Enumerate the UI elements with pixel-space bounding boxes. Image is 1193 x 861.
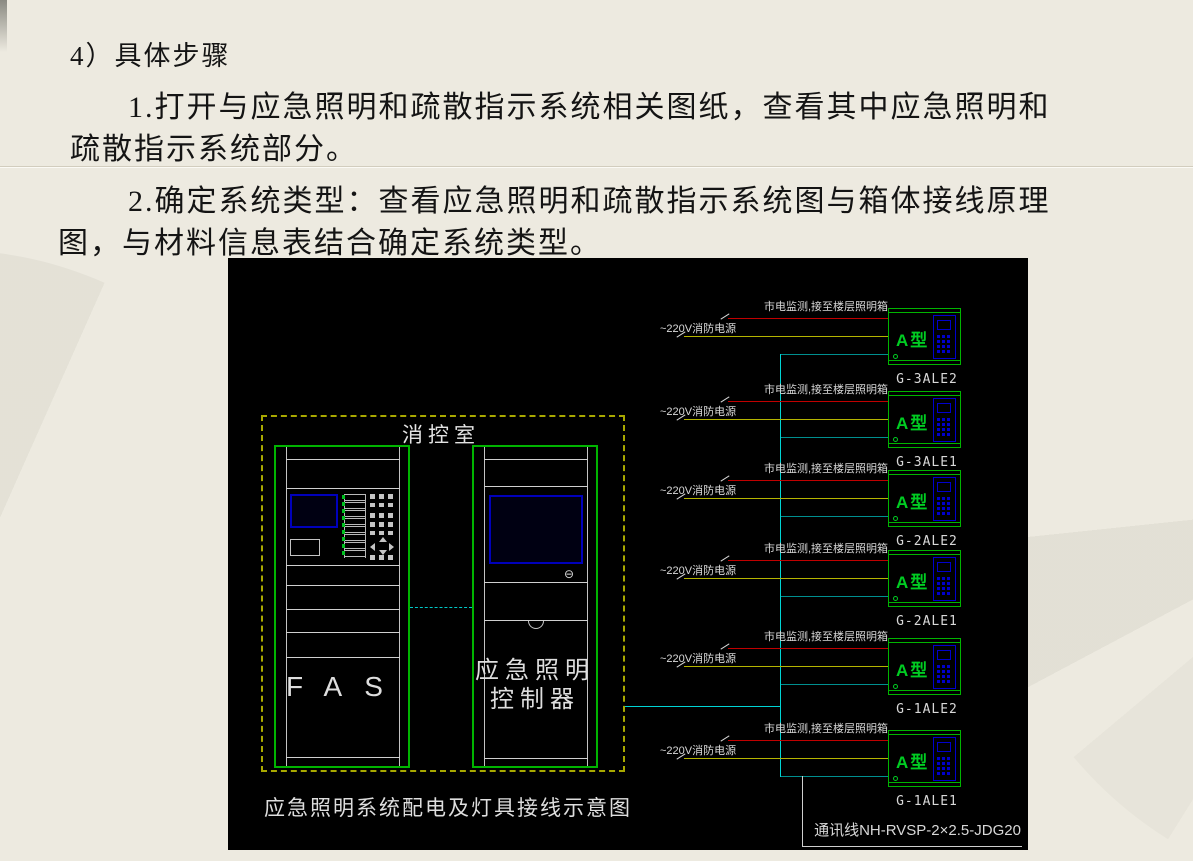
box-inner-border-top [889, 312, 960, 313]
fas-top-divider [286, 459, 400, 460]
controller-display-screen [489, 495, 583, 564]
box-inner-border-bottom [889, 690, 960, 691]
distribution-box: A型 [888, 308, 961, 365]
fire-power-label: ~220V消防电源 [660, 320, 750, 336]
box-inner-border-bottom [889, 522, 960, 523]
unit-id-label: G-1ALE1 [888, 794, 966, 809]
mains-monitoring-wire [728, 648, 888, 649]
lighting-unit: 市电监测,接至楼层照明箱 ~220V消防电源 A型 G-1ALE2 [658, 622, 970, 718]
panel-keypad-icon [937, 497, 952, 516]
fas-cabinet-label: FAS [286, 671, 400, 703]
type-a-label: A型 [896, 409, 929, 434]
terminal-dot-icon [893, 516, 898, 521]
distribution-box: A型 [888, 470, 961, 527]
distribution-box: A型 [888, 638, 961, 695]
bus-stub-wire [781, 776, 888, 777]
paragraph1-line2: 疏散指示系统部分。 [70, 124, 358, 168]
fas-indicator-leds [342, 494, 345, 558]
fas-left-rail [286, 447, 287, 766]
panel-keypad-icon [937, 418, 952, 437]
mains-monitoring-wire [728, 480, 888, 481]
comm-callout-underline [802, 846, 1022, 847]
arrow-left-icon [370, 543, 375, 551]
presentation-slide: 4）具体步骤 1.打开与应急照明和疏散指示系统相关图纸，查看其中应急照明和 疏散… [0, 0, 1193, 861]
horizontal-divider [0, 166, 1193, 168]
panel-screen-icon [937, 562, 951, 572]
slide-heading: 4）具体步骤 [70, 34, 231, 73]
fire-power-wire [684, 419, 888, 420]
terminal-dot-icon [893, 776, 898, 781]
fire-power-label: ~220V消防电源 [660, 562, 750, 578]
panel-screen-icon [937, 742, 951, 752]
fire-power-wire [684, 498, 888, 499]
bus-stub-wire [781, 437, 888, 438]
controller-cabinet: ⊖ 应急照明 控制器 [472, 445, 598, 768]
controller-left-rail [484, 447, 485, 766]
drawer-handle-icon [528, 621, 544, 629]
fas-divider-1 [286, 565, 400, 566]
terminal-dot-icon [893, 354, 898, 359]
bus-stub-wire [781, 684, 888, 685]
type-a-label: A型 [896, 748, 929, 773]
panel-screen-icon [937, 650, 951, 660]
box-inner-border-bottom [889, 782, 960, 783]
bus-stub-wire [781, 354, 888, 355]
fire-power-wire [684, 758, 888, 759]
arrow-right-icon [389, 543, 394, 551]
controller-bottom-divider [484, 758, 588, 759]
panel-screen-icon [937, 482, 951, 492]
terminal-dot-icon [893, 596, 898, 601]
mains-monitoring-wire [728, 401, 888, 402]
control-panel-icon [933, 737, 956, 781]
control-panel-icon [933, 315, 956, 359]
box-inner-border-top [889, 642, 960, 643]
wiring-diagram-canvas: 消控室 FAS [228, 258, 1028, 850]
lighting-unit: 市电监测,接至楼层照明箱 ~220V消防电源 A型 G-1ALE1 [658, 714, 970, 810]
fas-display-screen [290, 494, 338, 528]
lighting-unit: 市电监测,接至楼层照明箱 ~220V消防电源 A型 G-3ALE2 [658, 292, 970, 388]
mains-monitoring-wire [728, 560, 888, 561]
box-inner-border-top [889, 395, 960, 396]
fas-button-grid-top [370, 494, 396, 507]
fas-right-rail [399, 447, 400, 766]
fas-printer-slot [290, 539, 320, 556]
fas-divider-5 [286, 657, 400, 658]
terminal-dot-icon [893, 684, 898, 689]
fire-power-wire [684, 578, 888, 579]
fire-power-label: ~220V消防电源 [660, 650, 750, 666]
fas-button-grid-middle [370, 513, 396, 535]
type-a-label: A型 [896, 488, 929, 513]
box-inner-border-top [889, 734, 960, 735]
control-panel-icon [933, 645, 956, 689]
type-a-label: A型 [896, 326, 929, 351]
fire-power-wire [684, 666, 888, 667]
mains-monitoring-wire [728, 318, 888, 319]
cabinet-link-dashed-wire [410, 607, 472, 608]
lighting-unit: 市电监测,接至楼层照明箱 ~220V消防电源 A型 G-2ALE1 [658, 534, 970, 630]
diagram-caption: 应急照明系统配电及灯具接线示意图 [264, 792, 632, 822]
box-inner-border-bottom [889, 602, 960, 603]
fire-power-label: ~220V消防电源 [660, 482, 750, 498]
control-panel-icon [933, 557, 956, 601]
controller-top-divider [484, 459, 588, 460]
controller-divider-1 [484, 582, 588, 583]
paragraph2-line1: 2.确定系统类型：查看应急照明和疏散指示系统图与箱体接线原理 [128, 176, 1051, 220]
panel-keypad-icon [937, 665, 952, 684]
type-a-label: A型 [896, 568, 929, 593]
fas-divider-3 [286, 609, 400, 610]
fas-divider-4 [286, 632, 400, 633]
corner-shadow-decoration [0, 0, 7, 52]
fas-indicator-column [344, 494, 366, 558]
minus-circle-icon: ⊖ [564, 568, 574, 580]
box-inner-border-top [889, 554, 960, 555]
panel-screen-icon [937, 403, 951, 413]
panel-keypad-icon [937, 335, 952, 354]
terminal-dot-icon [893, 437, 898, 442]
panel-screen-icon [937, 320, 951, 330]
paragraph1-line1: 1.打开与应急照明和疏散指示系统相关图纸，查看其中应急照明和 [128, 82, 1051, 126]
fas-cabinet: FAS [274, 445, 410, 768]
comm-line-label: 通讯线NH-RVSP-2×2.5-JDG20 [810, 819, 1025, 840]
box-inner-border-top [889, 474, 960, 475]
arrow-up-icon [379, 537, 387, 542]
fire-power-wire [684, 336, 888, 337]
fas-button-grid-bottom [370, 555, 396, 561]
panel-keypad-icon [937, 757, 952, 776]
fas-bottom-divider [286, 757, 400, 758]
controller-right-rail [587, 447, 588, 766]
bus-stub-wire [781, 516, 888, 517]
fas-divider-2 [286, 585, 400, 586]
distribution-box: A型 [888, 391, 961, 448]
panel-keypad-icon [937, 577, 952, 596]
distribution-box: A型 [888, 550, 961, 607]
distribution-box: A型 [888, 730, 961, 787]
controller-label-line2: 控制器 [474, 679, 596, 714]
box-inner-border-bottom [889, 360, 960, 361]
type-a-label: A型 [896, 656, 929, 681]
control-panel-icon [933, 398, 956, 442]
mains-monitoring-wire [728, 740, 888, 741]
controller-panel-top [484, 486, 588, 487]
bus-stub-wire [781, 596, 888, 597]
fas-panel-top [286, 488, 400, 489]
fire-power-label: ~220V消防电源 [660, 742, 750, 758]
box-inner-border-bottom [889, 443, 960, 444]
paragraph2-line2: 图，与材料信息表结合确定系统类型。 [58, 218, 602, 262]
control-panel-icon [933, 477, 956, 521]
comm-callout-drop-line [802, 776, 803, 846]
fire-power-label: ~220V消防电源 [660, 403, 750, 419]
